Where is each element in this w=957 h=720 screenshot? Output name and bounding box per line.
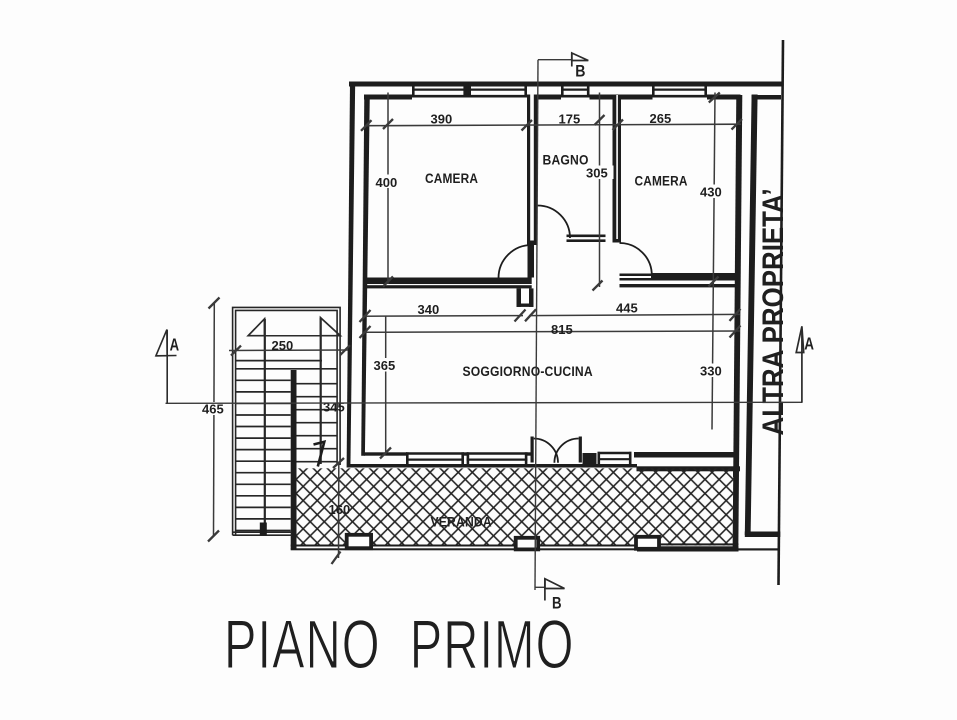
svg-text:340: 340 (418, 302, 440, 317)
svg-text:PIANO PRIMO: PIANO PRIMO (224, 606, 574, 683)
svg-text:B: B (575, 62, 585, 80)
svg-text:430: 430 (700, 185, 722, 200)
svg-text:175: 175 (559, 112, 581, 127)
svg-text:365: 365 (374, 358, 396, 373)
svg-text:ALTRA PROPRIETA’: ALTRA PROPRIETA’ (756, 188, 789, 435)
svg-text:SOGGIORNO-CUCINA: SOGGIORNO-CUCINA (463, 363, 593, 379)
svg-text:A: A (804, 335, 814, 354)
svg-text:CAMERA: CAMERA (635, 173, 688, 189)
svg-text:265: 265 (650, 111, 672, 126)
svg-text:A: A (170, 336, 179, 355)
svg-text:400: 400 (376, 175, 398, 190)
svg-text:250: 250 (272, 338, 294, 353)
svg-text:305: 305 (586, 166, 608, 181)
svg-text:CAMERA: CAMERA (425, 170, 478, 186)
svg-text:390: 390 (431, 112, 453, 127)
svg-text:BAGNO: BAGNO (543, 152, 589, 168)
svg-text:815: 815 (551, 322, 573, 337)
svg-text:445: 445 (616, 301, 638, 316)
svg-text:345: 345 (323, 400, 345, 415)
svg-text:330: 330 (700, 364, 722, 379)
svg-text:160: 160 (329, 502, 351, 517)
